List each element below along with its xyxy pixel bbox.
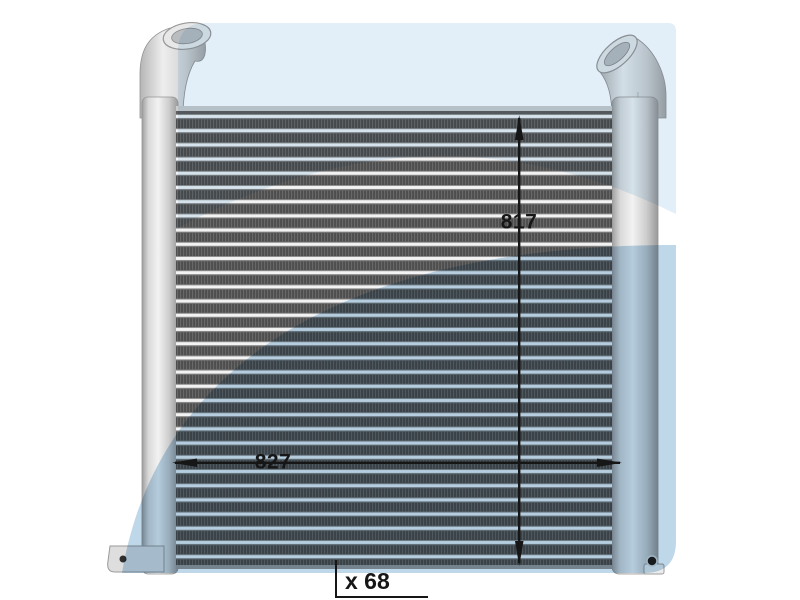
horizontal-dimension-label: 827 <box>255 452 292 473</box>
depth-dimension-label: x 68 <box>345 570 390 593</box>
product-image-canvas: 817 827 x 68 <box>0 0 800 600</box>
intercooler-illustration <box>0 0 800 600</box>
depth-dimension-callout: x 68 <box>335 560 428 598</box>
vertical-dimension-label: 817 <box>501 212 538 233</box>
